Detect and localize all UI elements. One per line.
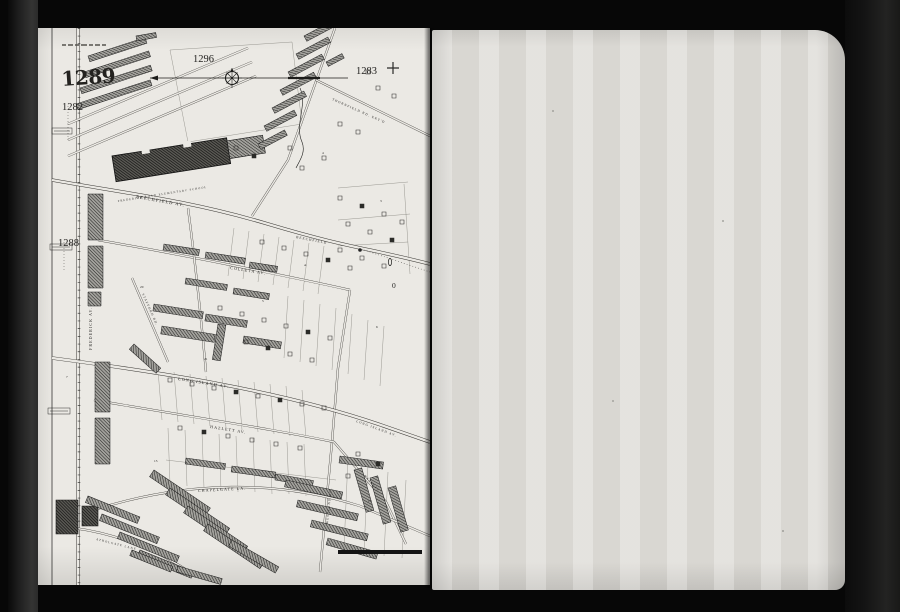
intersection-marker [358,248,362,252]
map-page: 1289 1296 1283 1282 1288 BEECHFIELD AV. … [38,28,430,585]
book-edge-right [845,0,900,612]
rowhouse-row [231,466,275,478]
rowhouse-row [310,520,368,541]
street-label-chapelgate: CHAPELGATE LA. [198,485,247,493]
dust-specks [552,110,554,112]
rowhouse-row [243,336,282,349]
scanned-book-spread: 1289 1296 1283 1282 1288 BEECHFIELD AV. … [0,0,900,612]
school-main-block [112,138,231,182]
rowhouse-row [161,326,216,342]
rowhouse-row [233,288,269,300]
plate-number: 1289 [61,63,116,91]
margin-reference-lines [50,131,70,411]
rowhouse-row [264,110,297,131]
road-network [52,28,430,585]
adjacent-plate-top-right: 1283 [356,66,377,77]
oval-marker [388,258,391,265]
plus-mark-icon [387,62,399,74]
filled-road-bar [338,550,422,554]
compass-arrowhead [150,76,158,81]
school-building [112,129,267,181]
rowhouse-row [285,480,343,499]
lot-number: 6 [376,325,378,329]
rowhouse-row [205,252,245,264]
street-label-long-island: LONG ISLAND AV. [178,376,230,389]
lot-number: 4 [322,151,324,155]
adjacent-plate-top: 1296 [193,54,214,65]
rowhouse-row [326,54,344,67]
lot-number: 21 [204,357,208,361]
zero-marker-label: 0 [392,281,396,290]
book-gutter-left-edge [8,0,38,612]
rowhouse-row [272,91,307,113]
sanborn-map-plate: 1289 1296 1283 1282 1288 BEECHFIELD AV. … [38,28,430,585]
rowhouse-row [185,278,227,290]
rowhouse-row [229,540,279,573]
rowhouse-row [185,458,225,470]
lot-number: 7 [66,375,68,379]
rowhouse-row [212,324,226,361]
lot-number: 3 [380,199,382,203]
road-colleta-surface [98,240,350,290]
rowhouse-row [326,538,378,559]
school-notch [183,141,192,148]
adjacent-plate-left-upper: 1282 [62,102,83,113]
rowhouse-row [153,304,203,319]
margin-reference-tags [48,128,72,414]
lot-number: 13 [368,499,372,503]
road-thornfield-surface [316,80,430,136]
compass-rose-icon [150,68,348,88]
lot-line-group [284,296,384,386]
road-beechfield-surface [52,180,430,264]
lot-number: 20 [140,285,144,289]
lot-number: 5 [262,299,264,303]
lot-number: 15 [154,459,158,463]
adjacent-plate-left-lower: 1288 [58,238,79,249]
detached-houses [168,70,404,478]
school-notch [141,147,150,154]
rowhouse-row [136,33,157,41]
street-label-frederick: FREDERICK AV. [88,307,93,350]
lot-line-group [338,182,410,274]
blank-page [432,30,845,590]
